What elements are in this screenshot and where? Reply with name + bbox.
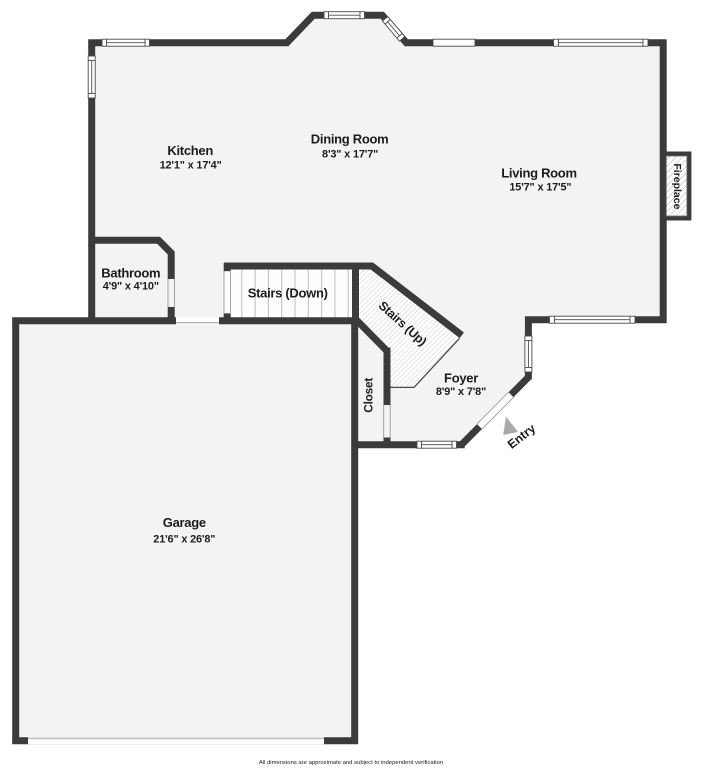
svg-text:Stairs (Down): Stairs (Down) bbox=[248, 285, 328, 300]
svg-text:Fireplace: Fireplace bbox=[671, 163, 683, 209]
svg-text:Closet: Closet bbox=[361, 378, 375, 413]
svg-text:Dining Room: Dining Room bbox=[311, 131, 389, 146]
svg-text:Bathroom: Bathroom bbox=[101, 266, 160, 281]
svg-text:Garage: Garage bbox=[163, 515, 206, 530]
svg-text:All dimensions are approximate: All dimensions are approximate and subje… bbox=[259, 760, 443, 766]
svg-text:Living Room: Living Room bbox=[501, 165, 576, 180]
svg-text:21'6" x 26'8": 21'6" x 26'8" bbox=[153, 534, 215, 546]
svg-text:12'1" x 17'4": 12'1" x 17'4" bbox=[160, 160, 222, 172]
svg-text:4'9" x 4'10": 4'9" x 4'10" bbox=[103, 280, 159, 292]
svg-text:Foyer: Foyer bbox=[444, 370, 478, 385]
svg-text:15'7" x 17'5": 15'7" x 17'5" bbox=[509, 182, 571, 194]
svg-text:8'9" x 7'8": 8'9" x 7'8" bbox=[436, 386, 486, 398]
svg-text:8'3" x 17'7": 8'3" x 17'7" bbox=[322, 148, 378, 160]
svg-text:Kitchen: Kitchen bbox=[167, 143, 213, 158]
